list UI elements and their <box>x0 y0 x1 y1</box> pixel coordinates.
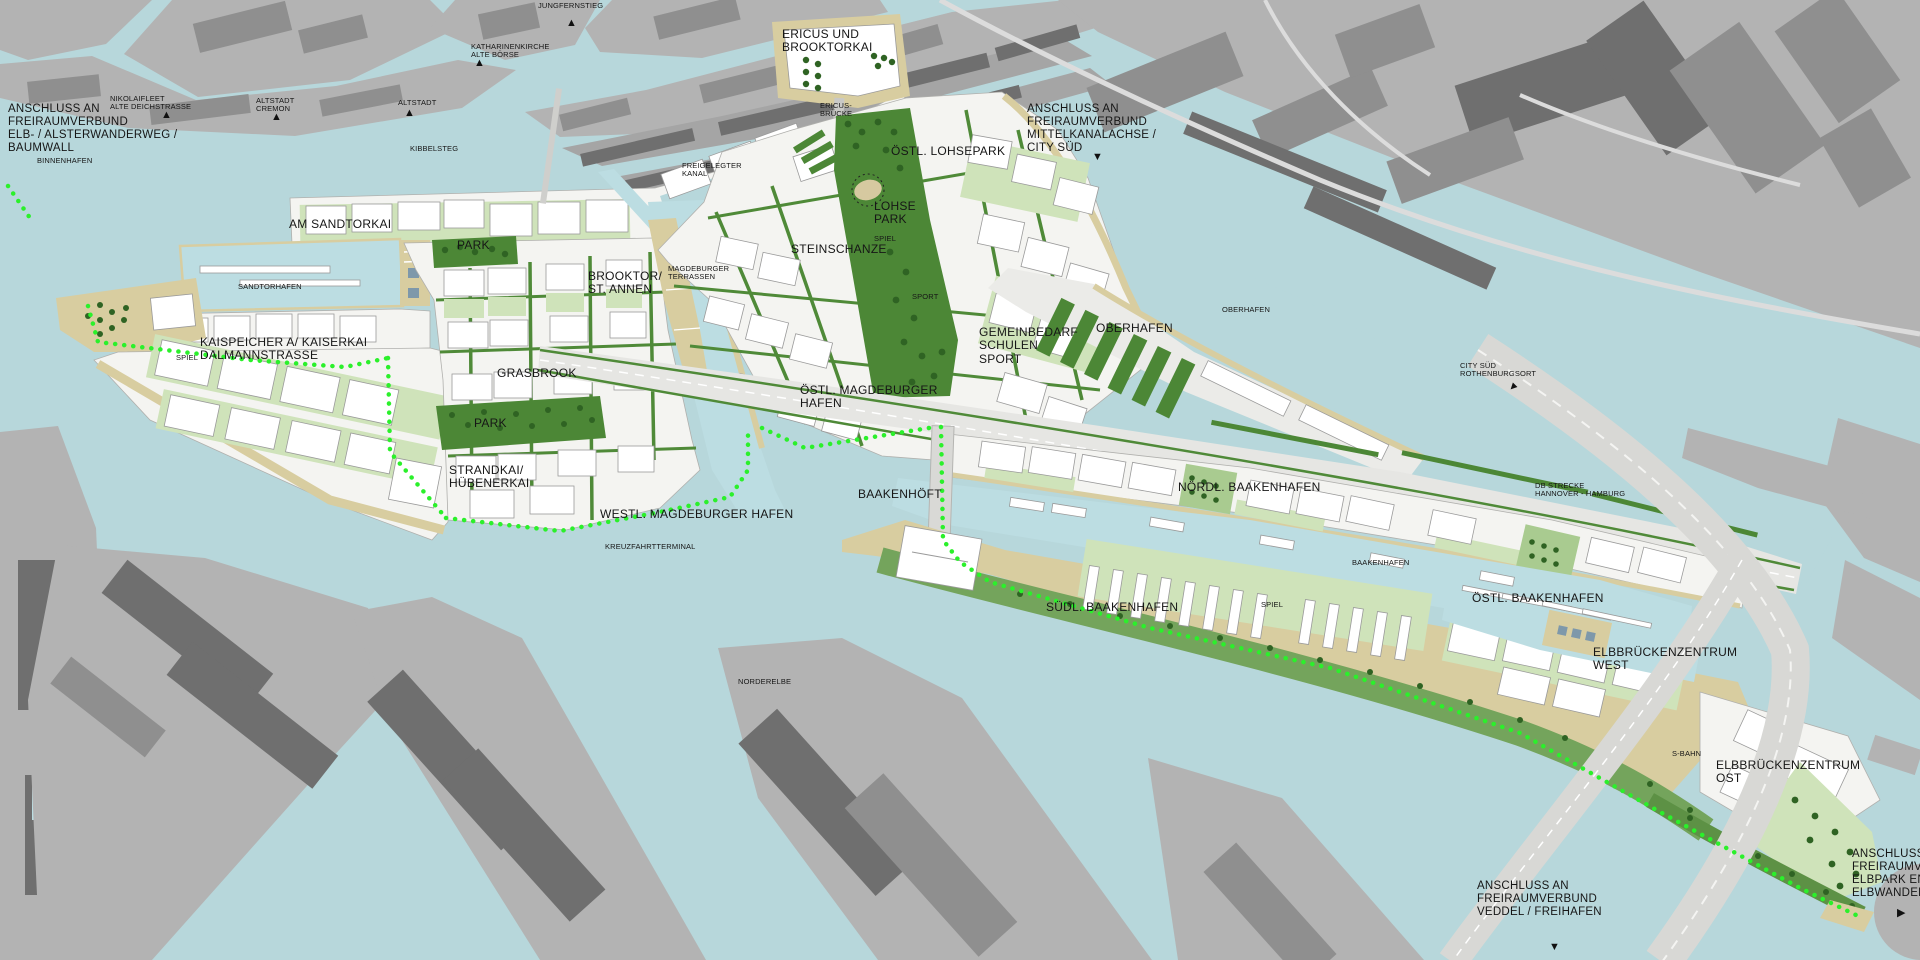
masterplan-map: ANSCHLUSS ANFREIRAUMVERBUNDELB- / ALSTER… <box>0 0 1920 960</box>
map-graphics <box>0 0 1920 960</box>
